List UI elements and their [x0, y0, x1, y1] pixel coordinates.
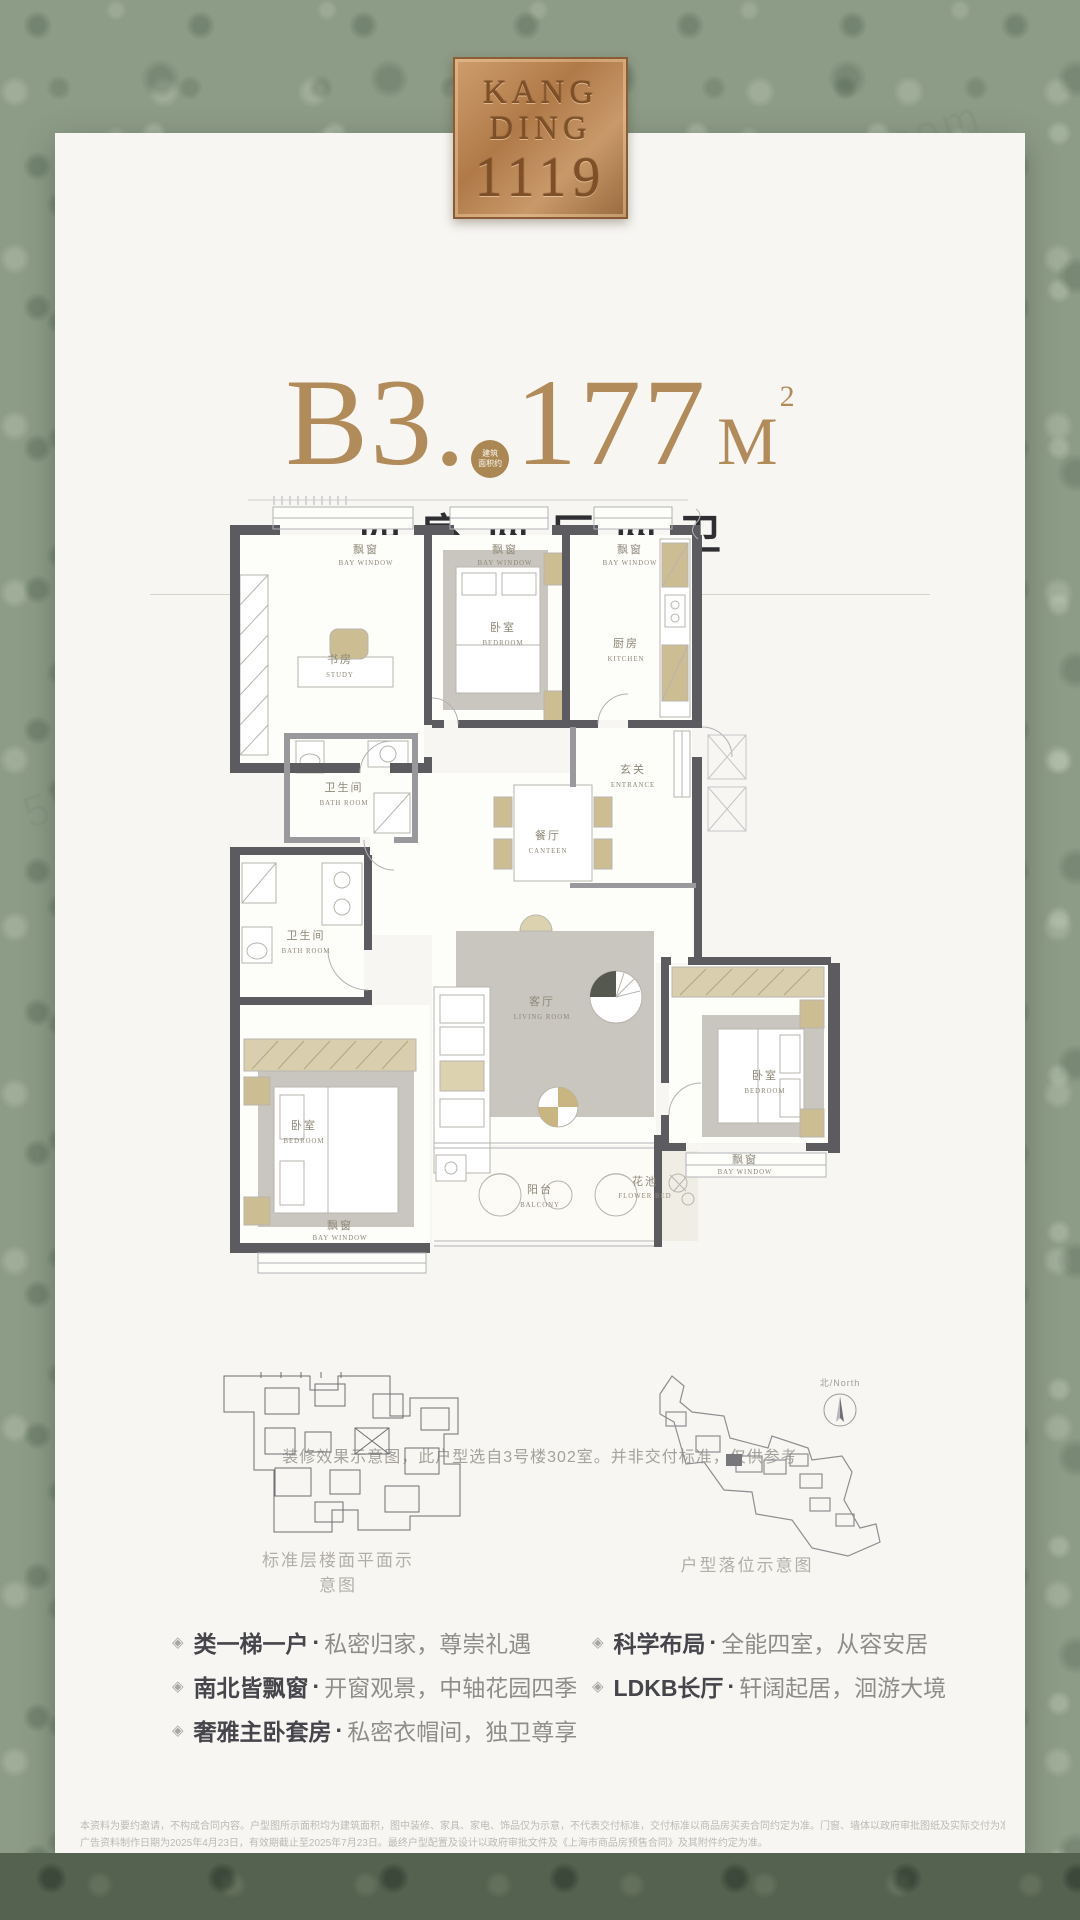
logo-line-2: DING — [453, 111, 628, 147]
room-label: 卫生间BATH ROOM — [282, 928, 331, 955]
area-dot: . — [434, 354, 467, 491]
siteplan-diagram: 北/North — [640, 1356, 890, 1566]
feature-column-right: ◈ 科学布局 · 全能四室，从容安居 ◈ LDKB长厅 · 轩阔起居，洄游大境 — [592, 1620, 946, 1708]
room-label: 卫生间BATH ROOM — [320, 780, 369, 807]
feature-lead: 类一梯一户 — [194, 1625, 309, 1659]
feature-item: ◈ 奢雅主卧套房 · 私密衣帽间，独卫尊享 — [172, 1708, 577, 1752]
area-badge: 建筑面积约 — [471, 440, 509, 478]
logo-line-1: KANG — [453, 75, 628, 111]
feature-separator: · — [313, 1629, 321, 1656]
compass-icon: 北/North — [820, 1378, 861, 1426]
area-unit: M — [717, 403, 777, 479]
feature-separator: · — [313, 1673, 321, 1700]
floorplan-drawing: 飘窗BAY WINDOW 飘窗BAY WINDOW 飘窗BAY WINDOW 书… — [218, 495, 862, 1305]
diamond-bullet-icon: ◈ — [172, 1677, 184, 1695]
diamond-bullet-icon: ◈ — [592, 1677, 604, 1695]
feature-separator: · — [710, 1629, 718, 1656]
feature-column-left: ◈ 类一梯一户 · 私密归家，尊崇礼遇 ◈ 南北皆飘窗 · 开窗观景，中轴花园四… — [172, 1620, 577, 1752]
siteplan-diagram-label: 户型落位示意图 — [667, 1551, 827, 1576]
area-unit-sup: 2 — [780, 380, 795, 413]
feature-lead: 奢雅主卧套房 — [194, 1713, 332, 1747]
highlighted-unit — [726, 1454, 742, 1466]
area-number: 177 — [515, 354, 707, 491]
floorplate-diagram-label: 标准层楼面平面示意图 — [253, 1546, 423, 1596]
feature-tail: 私密归家，尊崇礼遇 — [324, 1625, 531, 1659]
floorplan-public-corridor — [708, 735, 746, 831]
area-badge-line2: 面积约 — [478, 459, 502, 469]
feature-lead: 南北皆飘窗 — [194, 1669, 309, 1703]
feature-separator: · — [727, 1673, 735, 1700]
disclaimer: 本资料为要约邀请，不构成合同内容。户型图所示面积均为建筑面积，图中装修、家具、家… — [80, 1818, 1005, 1852]
feature-tail: 全能四室，从容安居 — [721, 1625, 928, 1659]
area-title: B3.建筑面积约177M2 — [55, 361, 1025, 486]
feature-item: ◈ 类一梯一户 · 私密归家，尊崇礼遇 — [172, 1620, 577, 1664]
feature-lead: 科学布局 — [614, 1625, 706, 1659]
disclaimer-line-1: 本资料为要约邀请，不构成合同内容。户型图所示面积均为建筑面积，图中装修、家具、家… — [80, 1818, 1005, 1835]
area-badge-line1: 建筑 — [482, 449, 498, 459]
diamond-bullet-icon: ◈ — [592, 1633, 604, 1651]
feature-separator: · — [336, 1717, 344, 1744]
floorplate-diagram — [195, 1368, 480, 1543]
feature-tail: 开窗观景，中轴花园四季 — [324, 1669, 577, 1703]
compass-label: 北/North — [820, 1378, 861, 1388]
area-prefix: B3 — [285, 354, 434, 491]
feature-lead: LDKB长厅 — [614, 1669, 724, 1703]
bottom-texture-band — [0, 1853, 1080, 1920]
feature-item: ◈ LDKB长厅 · 轩阔起居，洄游大境 — [592, 1664, 946, 1708]
disclaimer-line-2: 广告资料制作日期为2025年4月23日，有效期截止至2025年7月23日。最终户… — [80, 1835, 1005, 1852]
feature-item: ◈ 南北皆飘窗 · 开窗观景，中轴花园四季 — [172, 1664, 577, 1708]
diamond-bullet-icon: ◈ — [172, 1633, 184, 1651]
brand-plaque-logo: KANG DING 1119 — [453, 57, 628, 219]
poster-page: 5i5j.com 5i5j.com 5i5j.com 5i5j.com 5i5j… — [0, 0, 1080, 1920]
logo-line-3: 1119 — [453, 147, 628, 209]
diamond-bullet-icon: ◈ — [172, 1721, 184, 1739]
feature-tail: 轩阔起居，洄游大境 — [739, 1669, 946, 1703]
feature-item: ◈ 科学布局 · 全能四室，从容安居 — [592, 1620, 946, 1664]
poster-card: B3.建筑面积约177M2 四室两厅两卫 — [55, 133, 1025, 1855]
feature-tail: 私密衣帽间，独卫尊享 — [347, 1713, 577, 1747]
